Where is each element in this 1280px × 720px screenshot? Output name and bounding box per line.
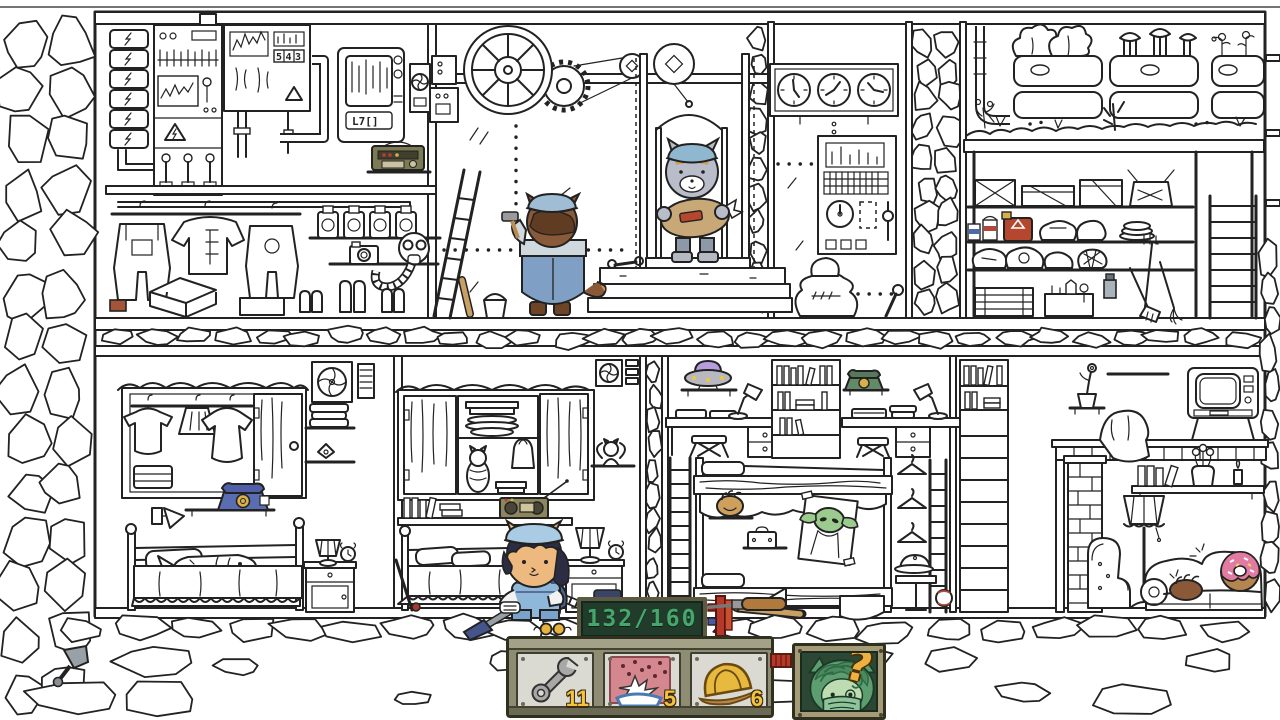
- flywheel: [464, 26, 552, 114]
- radio-workshop[interactable]: [372, 142, 424, 170]
- hint-cat-portrait: ?: [800, 651, 878, 712]
- fuse-cabinet: [154, 11, 222, 195]
- red-ball-small: [412, 603, 420, 611]
- toolbox-base: [509, 706, 771, 715]
- wall-machine-small: [430, 56, 458, 122]
- computer-terminal: L7[]: [338, 48, 404, 142]
- bait-count: 5: [664, 686, 676, 712]
- table-lamp: [316, 540, 340, 566]
- found-counter: 132/160: [577, 597, 707, 641]
- wall-fan-unit: [410, 64, 430, 112]
- counter-text: 132/160: [587, 606, 698, 632]
- tool-slot-bait[interactable]: 5: [603, 652, 681, 712]
- bookshelf-center: [772, 360, 840, 458]
- pink-donut[interactable]: [1221, 552, 1259, 591]
- wardrobe: [118, 383, 308, 498]
- camera: [350, 242, 378, 264]
- wrench-count: 11: [566, 686, 589, 712]
- baseball[interactable]: [936, 590, 952, 606]
- hanging-bag: [512, 439, 534, 468]
- tool-slot-wrench[interactable]: 11: [516, 652, 594, 712]
- helmet-count: 6: [751, 686, 763, 712]
- paint-bucket: [484, 294, 506, 318]
- hint-button[interactable]: ?: [792, 643, 886, 720]
- wall-fan2: [596, 360, 622, 386]
- toolbox-rim: [509, 639, 771, 650]
- breaker-digits: 543: [276, 52, 305, 63]
- game-screen: 543 L7[]: [0, 0, 1280, 720]
- spray-bottle: [1104, 280, 1116, 298]
- stone-wall-left: [0, 16, 98, 715]
- toolbox-hud: 11 5 6: [506, 636, 774, 718]
- sardine-can[interactable]: [110, 300, 126, 311]
- stone-wall-right: [1259, 239, 1280, 613]
- hydroponic-trays: [1014, 56, 1264, 118]
- tall-rack: [960, 360, 1008, 612]
- flat-box: [240, 298, 284, 315]
- lettuce-plants: [1013, 24, 1092, 56]
- air-vent: [358, 364, 374, 398]
- terminal-text: L7[]: [352, 115, 379, 128]
- tool-slot-helmet[interactable]: 6: [690, 652, 768, 712]
- blue-telephone[interactable]: [218, 483, 269, 510]
- control-panel: [818, 136, 896, 254]
- wall-fan: [312, 362, 352, 402]
- red-pipe-connector: [770, 653, 792, 668]
